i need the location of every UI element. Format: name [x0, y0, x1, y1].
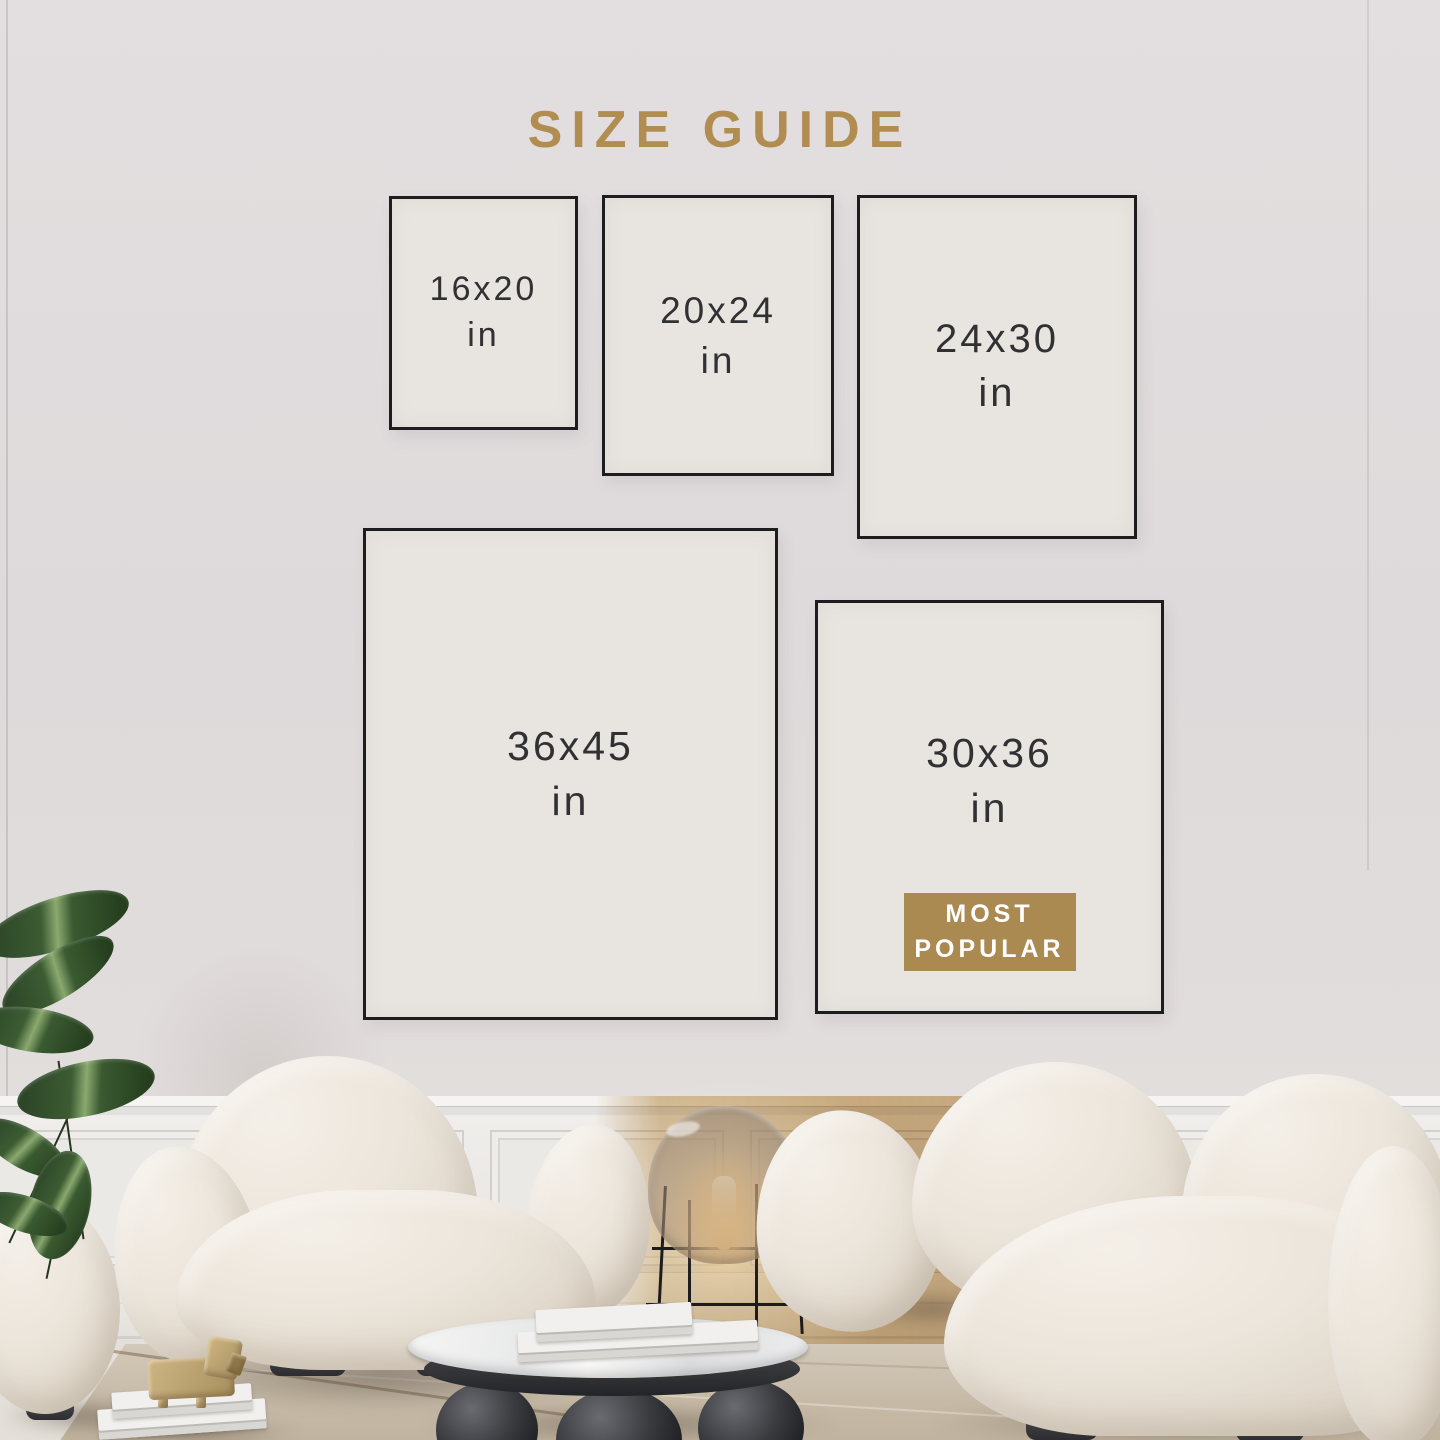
size-dimensions: 20x24 — [660, 286, 776, 336]
most-popular-badge: MOST POPULAR — [904, 893, 1076, 971]
size-label: 20x24 in — [660, 286, 776, 385]
badge-line: MOST — [945, 897, 1033, 933]
size-option-30x36: 30x36 in MOST POPULAR — [815, 600, 1164, 1014]
wall-corner-line-left — [6, 0, 8, 1140]
badge-line: POPULAR — [914, 932, 1064, 968]
size-unit: in — [660, 336, 776, 386]
size-option-16x20: 16x20 in — [389, 196, 578, 430]
size-dimensions: 16x20 — [430, 267, 538, 313]
size-unit: in — [507, 774, 634, 829]
size-option-20x24: 20x24 in — [602, 195, 834, 476]
size-option-36x45: 36x45 in — [363, 528, 778, 1020]
size-dimensions: 36x45 — [507, 719, 634, 774]
size-dimensions: 24x30 — [935, 313, 1059, 367]
size-label: 30x36 in — [926, 726, 1053, 836]
size-label: 16x20 in — [430, 267, 538, 358]
size-dimensions: 30x36 — [926, 726, 1053, 781]
plant-leaf — [0, 1000, 96, 1060]
size-unit: in — [430, 313, 538, 359]
size-unit: in — [935, 367, 1059, 421]
size-guide-title: SIZE GUIDE — [0, 100, 1440, 160]
size-guide-mockup: SIZE GUIDE 16x20 in 20x24 in 24x30 in 36… — [0, 0, 1440, 1440]
size-option-24x30: 24x30 in — [857, 195, 1137, 539]
size-label: 24x30 in — [935, 313, 1059, 420]
size-label: 36x45 in — [507, 719, 634, 829]
size-unit: in — [926, 781, 1053, 836]
